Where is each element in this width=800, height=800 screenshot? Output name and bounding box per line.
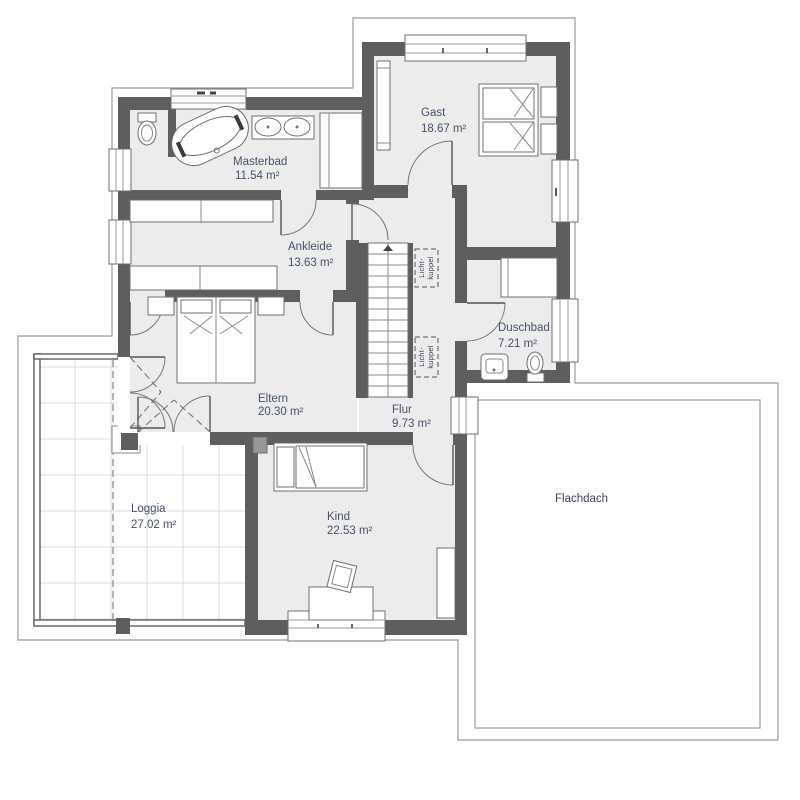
floor-plan-drawing: Licht- kuppel Licht- kuppel (0, 0, 800, 800)
label-kind-name: Kind (327, 511, 350, 523)
label-gast-area: 18.67 m² (421, 123, 467, 135)
ankleide-wardrobe-south (130, 266, 277, 290)
loggia-railing-south (34, 620, 245, 626)
gast-north-window (405, 35, 526, 61)
staircase (368, 243, 408, 397)
label-masterbad-name: Masterbad (233, 156, 287, 168)
loggia-railing-west (34, 354, 40, 624)
gast-nightstand-2 (541, 124, 557, 154)
duschbad-toilet (527, 352, 544, 382)
flachdach-surface (475, 400, 760, 728)
label-flur-name: Flur (392, 404, 412, 416)
label-loggia-name: Loggia (131, 503, 166, 515)
skylight-2-label-line2: kuppel (426, 345, 435, 368)
masterbad-west-window (109, 149, 131, 191)
duschbad-east-window (552, 299, 578, 362)
label-gast-name: Gast (421, 107, 446, 119)
masterbad-closet (320, 113, 362, 188)
shower (501, 258, 557, 297)
skylight-1-label-line2: kuppel (426, 256, 435, 279)
masterbad-window (171, 89, 246, 109)
label-ankleide-area: 13.63 m² (288, 257, 334, 269)
skylight-1-label-line1: Licht- (417, 258, 426, 278)
eltern-nightstand-2 (258, 297, 284, 315)
gast-nightstand-1 (541, 87, 557, 117)
label-duschbad-area: 7.21 m² (498, 338, 537, 350)
label-duschbad-name: Duschbad (498, 322, 550, 334)
skylight-2-label-line1: Licht- (417, 347, 426, 367)
masterbad-toilet (138, 113, 156, 145)
eltern-nightstand-1 (148, 297, 174, 315)
floor-plan-page: Licht- kuppel Licht- kuppel (0, 0, 800, 800)
gast-east-window (552, 160, 578, 222)
loggia-post (116, 618, 130, 634)
kind-wardrobe (437, 548, 455, 618)
flur-east-window (451, 397, 478, 434)
label-flur-area: 9.73 m² (392, 418, 431, 430)
gast-radiator (377, 61, 390, 150)
label-flachdach: Flachdach (555, 493, 608, 505)
label-ankleide-name: Ankleide (288, 241, 332, 253)
label-loggia-area: 27.02 m² (131, 519, 177, 531)
kind-bed (274, 443, 367, 491)
label-eltern-area: 20.30 m² (258, 406, 304, 418)
post-eltern-kind (253, 437, 267, 453)
masterbad-vanity (252, 116, 314, 139)
duschbad-sink (481, 354, 508, 380)
label-kind-area: 22.53 m² (327, 525, 373, 537)
ankleide-west-window (109, 220, 131, 264)
label-eltern-name: Eltern (258, 393, 288, 405)
ankleide-wardrobe-north (130, 200, 273, 222)
loggia-railing-north (34, 354, 118, 359)
label-masterbad-area: 11.54 m² (235, 170, 280, 182)
